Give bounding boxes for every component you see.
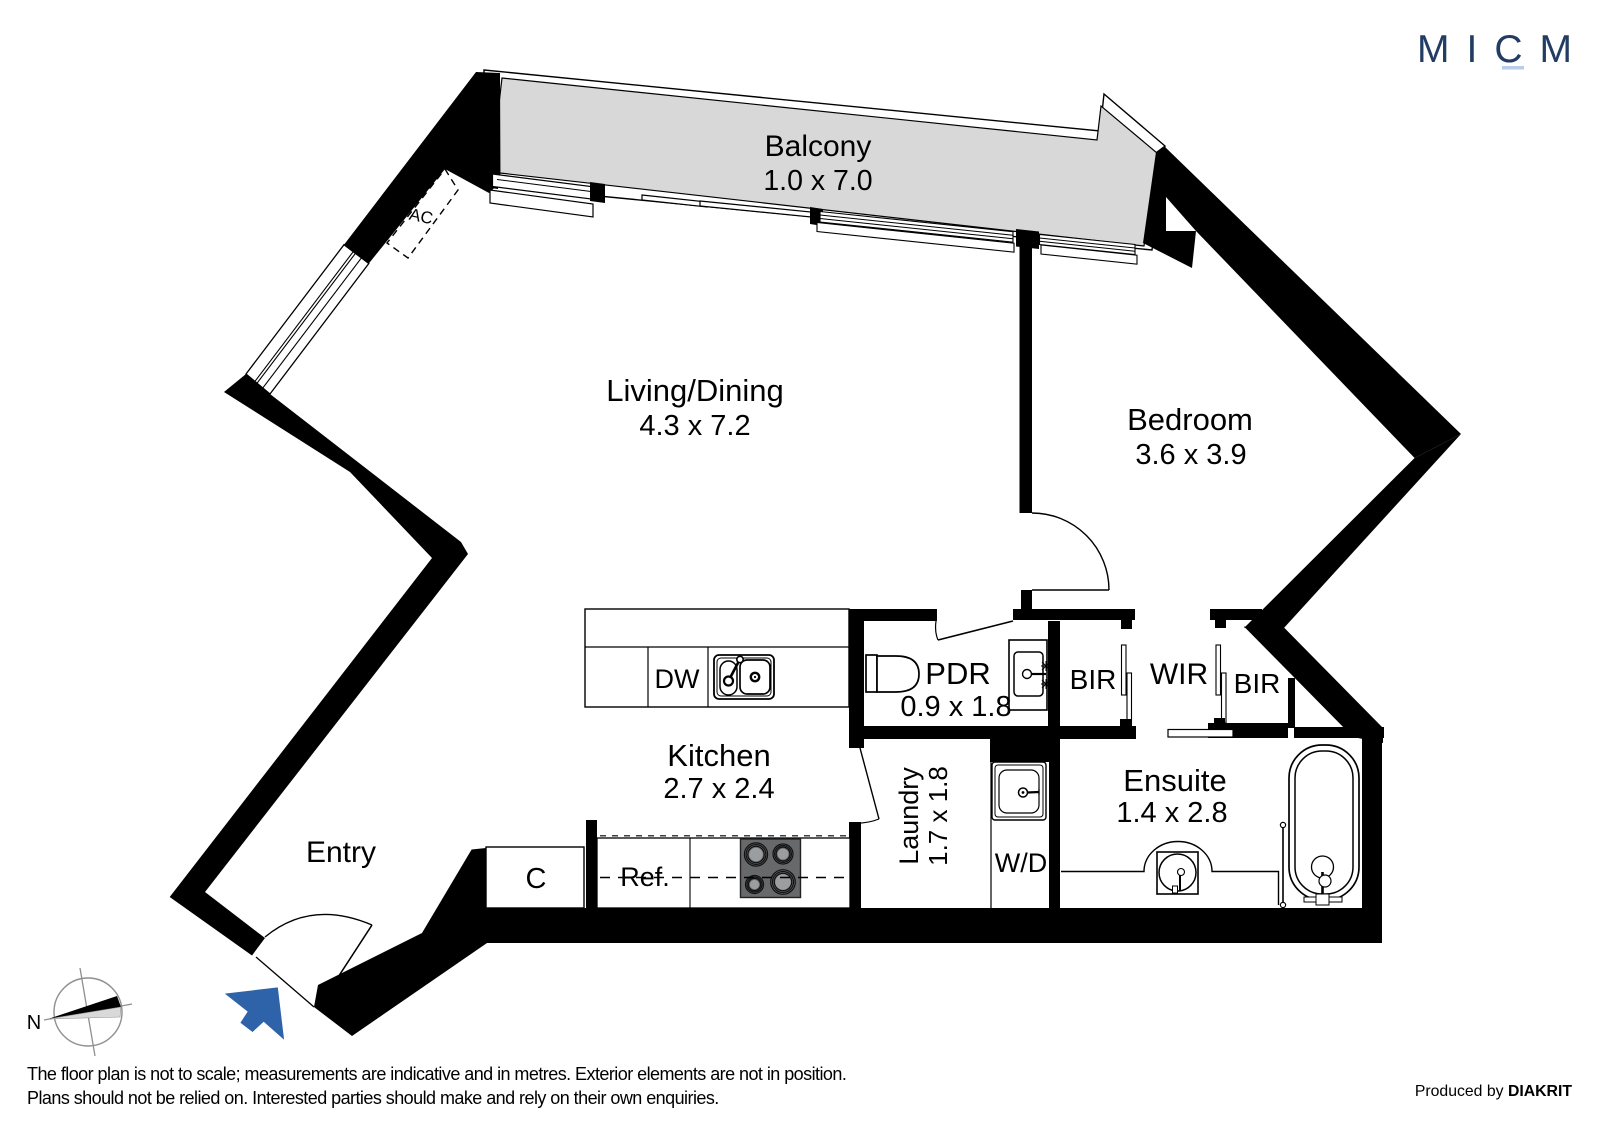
- svg-text:Entry: Entry: [306, 836, 376, 869]
- svg-text:The floor plan is not to scale: The floor plan is not to scale; measurem…: [27, 1064, 846, 1084]
- svg-text:Produced by DIAKRIT: Produced by DIAKRIT: [1415, 1083, 1573, 1100]
- svg-text:W/D: W/D: [995, 848, 1047, 878]
- svg-text:2.7 x 2.4: 2.7 x 2.4: [663, 773, 774, 805]
- svg-text:1.4 x 2.8: 1.4 x 2.8: [1116, 797, 1227, 829]
- svg-text:C: C: [526, 863, 547, 895]
- svg-text:Balcony: Balcony: [765, 130, 872, 163]
- svg-text:DW: DW: [655, 664, 700, 694]
- svg-text:0.9 x 1.8: 0.9 x 1.8: [900, 691, 1011, 723]
- svg-text:Plans should not be relied on.: Plans should not be relied on. Intereste…: [27, 1088, 719, 1108]
- svg-text:Laundry: Laundry: [894, 767, 924, 865]
- svg-text:AC: AC: [408, 205, 435, 228]
- svg-text:BIR: BIR: [1070, 664, 1117, 695]
- svg-text:4.3 x 7.2: 4.3 x 7.2: [639, 410, 750, 442]
- svg-text:Ensuite: Ensuite: [1123, 763, 1226, 798]
- svg-text:1.7 x 1.8: 1.7 x 1.8: [923, 766, 953, 866]
- svg-text:PDR: PDR: [925, 656, 990, 691]
- svg-text:1.0 x 7.0: 1.0 x 7.0: [763, 165, 872, 197]
- svg-text:BIR: BIR: [1234, 668, 1281, 699]
- svg-text:Kitchen: Kitchen: [667, 738, 770, 773]
- svg-text:WIR: WIR: [1150, 658, 1208, 691]
- svg-text:N: N: [27, 1012, 41, 1034]
- svg-text:Living/Dining: Living/Dining: [606, 373, 784, 408]
- svg-text:Bedroom: Bedroom: [1127, 402, 1253, 437]
- svg-text:MICM: MICM: [1417, 28, 1589, 71]
- svg-text:3.6 x 3.9: 3.6 x 3.9: [1135, 439, 1246, 471]
